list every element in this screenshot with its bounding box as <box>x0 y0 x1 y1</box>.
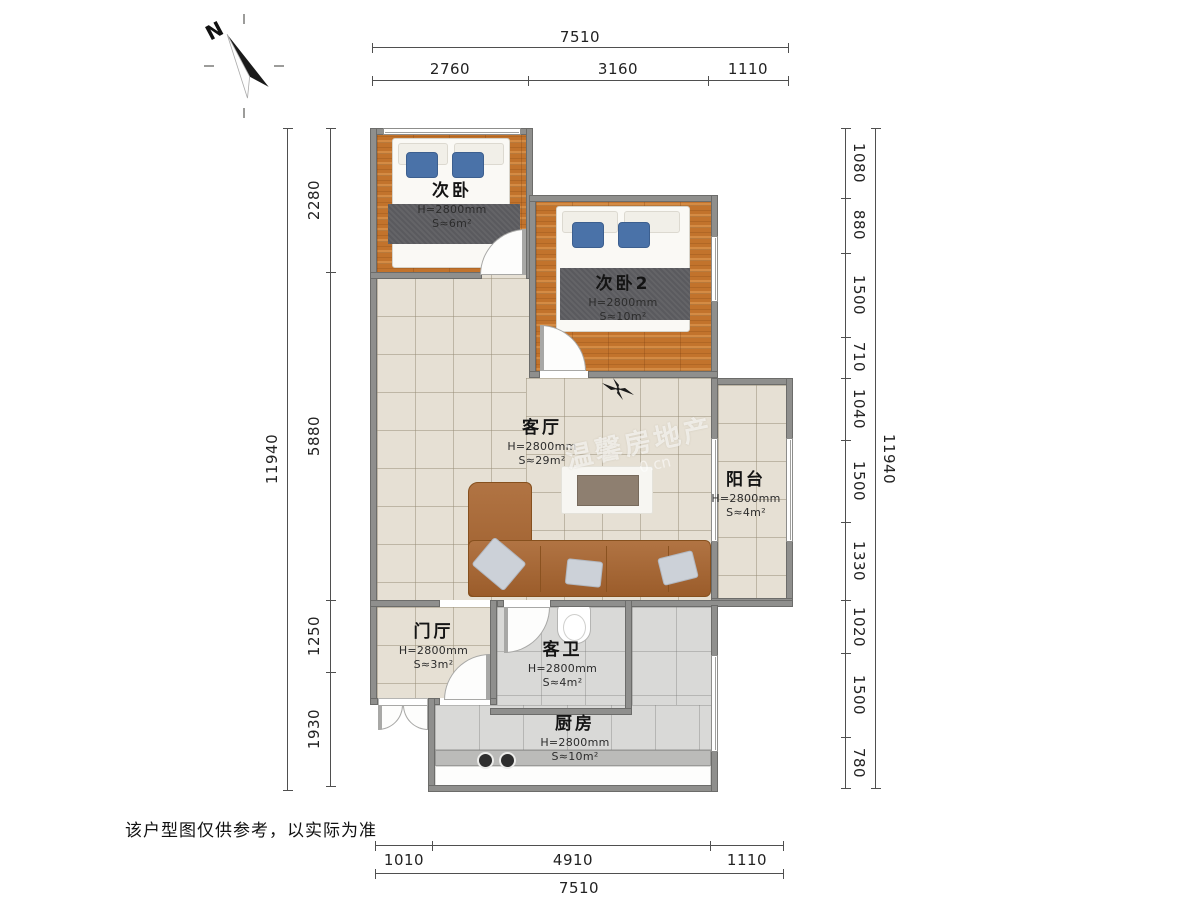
pillow-blue <box>618 222 650 248</box>
dim-tick <box>372 43 373 53</box>
dim-tick <box>326 786 336 787</box>
room-area: S≈4m² <box>500 676 625 690</box>
room-area: S≈10m² <box>500 750 650 764</box>
dim-tick <box>841 440 851 441</box>
wall <box>529 195 718 202</box>
dim-tick <box>375 869 376 879</box>
room-label-bedroom2: 次卧2 H=2800mm S≈10m² <box>556 272 690 324</box>
room-name: 厨房 <box>500 712 650 736</box>
dim-label: 1110 <box>728 60 768 78</box>
room-height: H=2800mm <box>478 440 606 454</box>
dim-tick <box>372 76 373 86</box>
room-area: S≈4m² <box>707 506 785 520</box>
dim-tick <box>326 600 336 601</box>
dim-tick <box>326 128 336 129</box>
room-label-bath: 客卫 H=2800mm S≈4m² <box>500 638 625 690</box>
dim-label-top-total: 7510 <box>560 28 600 46</box>
dim-tick <box>783 869 784 879</box>
dim-tick <box>283 128 293 129</box>
room-name: 次卧 <box>392 179 512 203</box>
dim-line-left-segments <box>330 128 331 786</box>
dim-label: 1500 <box>850 675 868 715</box>
dim-tick <box>375 841 376 851</box>
wall <box>428 785 718 792</box>
dim-tick <box>432 841 433 851</box>
dim-tick <box>841 337 851 338</box>
coffee-table <box>577 475 639 506</box>
room-label-hall: 门厅 H=2800mm S≈3m² <box>377 620 490 672</box>
fan-icon <box>601 376 635 406</box>
dim-tick <box>841 737 851 738</box>
room-height: H=2800mm <box>500 736 650 750</box>
dim-tick <box>528 76 529 86</box>
dim-tick <box>326 272 336 273</box>
pillow-blue <box>406 152 438 178</box>
pillow-blue <box>572 222 604 248</box>
dim-label-bottom-total: 7510 <box>559 879 599 897</box>
wall <box>550 600 793 607</box>
dim-label: 1250 <box>305 616 323 656</box>
dim-line-left-total <box>287 128 288 790</box>
dim-label: 1040 <box>850 389 868 429</box>
dim-tick <box>283 790 293 791</box>
window <box>786 438 793 542</box>
wall <box>490 698 497 705</box>
room-label-kitchen: 厨房 H=2800mm S≈10m² <box>500 712 650 764</box>
room-area: S≈6m² <box>392 217 512 231</box>
dim-line-top-total <box>372 47 788 48</box>
dim-tick <box>841 600 851 601</box>
dim-label: 2280 <box>305 180 323 220</box>
wall <box>529 371 540 378</box>
room-height: H=2800mm <box>392 203 512 217</box>
dim-tick <box>841 788 851 789</box>
wall <box>370 600 440 607</box>
dim-tick <box>841 128 851 129</box>
dim-label: 1010 <box>384 851 424 869</box>
dim-label: 1930 <box>305 709 323 749</box>
entrance-door-left <box>378 705 403 730</box>
dim-label: 4910 <box>553 851 593 869</box>
room-name: 客卫 <box>500 638 625 662</box>
room-name: 客厅 <box>478 416 606 440</box>
room-name: 门厅 <box>377 620 490 644</box>
room-area: S≈29m² <box>478 454 606 468</box>
dim-label: 5880 <box>305 416 323 456</box>
floorplan-canvas: 次卧 H=2800mm S≈6m² 次卧2 H=2800mm S≈10m² 客厅… <box>0 0 1200 900</box>
sofa-cushion <box>565 558 604 588</box>
window <box>711 236 718 302</box>
wall <box>428 698 435 792</box>
wall <box>625 600 632 715</box>
window <box>383 128 521 135</box>
wall <box>529 195 536 378</box>
room-area: S≈3m² <box>377 658 490 672</box>
dim-label: 1500 <box>850 275 868 315</box>
room-name: 阳台 <box>707 468 785 492</box>
room-label-living: 客厅 H=2800mm S≈29m² <box>478 416 606 468</box>
dim-tick <box>841 378 851 379</box>
sofa-seam <box>540 546 541 592</box>
room-label-bedroom1: 次卧 H=2800mm S≈6m² <box>392 179 512 231</box>
dim-label: 780 <box>850 748 868 778</box>
dim-tick <box>871 128 881 129</box>
dim-tick <box>871 788 881 789</box>
dim-tick <box>710 841 711 851</box>
room-height: H=2800mm <box>556 296 690 310</box>
dim-label: 3160 <box>598 60 638 78</box>
floor-kitchen-n <box>632 607 711 705</box>
dim-tick <box>326 672 336 673</box>
kitchen-cabinets <box>435 766 711 786</box>
dim-tick <box>841 522 851 523</box>
wall <box>497 600 504 607</box>
dim-label: 1020 <box>850 607 868 647</box>
north-compass-icon: N <box>196 8 291 127</box>
dim-tick <box>841 653 851 654</box>
dim-label: 880 <box>850 210 868 240</box>
wall <box>370 272 482 279</box>
sofa-seam <box>606 546 607 592</box>
pillow-blue <box>452 152 484 178</box>
dim-tick <box>841 253 851 254</box>
wall <box>370 128 377 705</box>
room-name: 次卧2 <box>556 272 690 296</box>
dim-label: 1330 <box>850 541 868 581</box>
dim-label-left-total: 11940 <box>263 434 281 484</box>
room-label-balcony: 阳台 H=2800mm S≈4m² <box>707 468 785 520</box>
dim-tick <box>788 76 789 86</box>
room-height: H=2800mm <box>500 662 625 676</box>
north-label: N <box>201 16 227 45</box>
dim-line-right-total <box>875 128 876 788</box>
dim-tick <box>788 43 789 53</box>
dim-label: 2760 <box>430 60 470 78</box>
room-area: S≈10m² <box>556 310 690 324</box>
dim-tick <box>708 76 709 86</box>
dim-label: 710 <box>850 342 868 372</box>
stove-burner <box>477 752 494 769</box>
dim-tick <box>783 841 784 851</box>
wall <box>711 378 793 385</box>
dim-tick <box>841 198 851 199</box>
dim-line-bottom-total <box>375 873 783 874</box>
wall <box>370 698 378 705</box>
dim-label: 1110 <box>727 851 767 869</box>
wall <box>490 600 497 705</box>
dim-line-top-segments <box>372 80 788 81</box>
entrance-door-right <box>403 705 428 730</box>
room-height: H=2800mm <box>707 492 785 506</box>
dim-label-right-total: 11940 <box>880 434 898 484</box>
room-height: H=2800mm <box>377 644 490 658</box>
window <box>711 655 718 752</box>
dim-label: 1500 <box>850 461 868 501</box>
dim-label: 1080 <box>850 143 868 183</box>
disclaimer-note: 该户型图仅供参考，以实际为准 <box>125 816 377 841</box>
dim-line-right-segments <box>845 128 846 788</box>
dim-line-bottom-segments <box>375 845 783 846</box>
